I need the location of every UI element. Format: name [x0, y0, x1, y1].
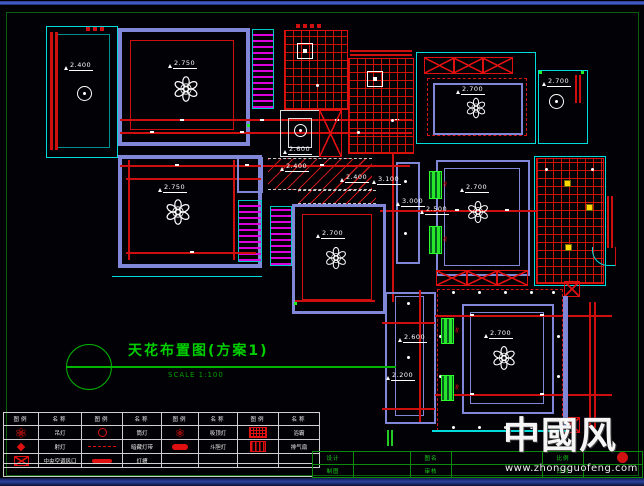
drawing-title: 天花布置图(方案1) [128, 340, 269, 360]
elevation-label: 2.700 [316, 230, 345, 239]
balcony-curtain-line [55, 32, 58, 150]
legend-symbol-cell [162, 426, 199, 440]
titleblock-cell: 审核 [411, 465, 452, 478]
elevation-label: 2.400 [280, 163, 309, 172]
legend-name: 筒灯 [123, 426, 162, 440]
closet-xbox [466, 270, 498, 286]
chandelier-icon [490, 344, 518, 372]
chandelier-icon [464, 96, 488, 120]
dim-text-mark [540, 314, 544, 316]
airflow-mark: ≈ [452, 384, 460, 391]
dimension-line [382, 322, 435, 324]
dim-text-mark [86, 27, 106, 31]
elevation-label: 2.700 [484, 330, 513, 339]
dim-text-mark [190, 251, 194, 253]
downlight-dot [404, 232, 407, 235]
dim-text-mark [505, 209, 509, 211]
exhaust-fan-symbol-icon [250, 441, 266, 452]
titleblock-cell: 设计 [313, 452, 354, 465]
dim-text-mark [470, 393, 474, 395]
airflow-mark: ≈ [440, 236, 448, 243]
green-node [294, 302, 297, 305]
legend-header: 图例 [238, 413, 279, 426]
window-bottom-edge [0, 478, 644, 486]
green-node [581, 71, 584, 74]
curtain-line [611, 196, 613, 248]
ceiling-line [233, 160, 235, 260]
titleblock-cell [354, 452, 411, 465]
dimension-line [419, 290, 421, 422]
titleblock-cell: 图名 [411, 452, 452, 465]
dimension-line [382, 408, 435, 410]
elevation-label: 2.750 [158, 184, 187, 193]
downlight-dot [452, 291, 455, 294]
chandelier-icon [323, 245, 349, 271]
legend-name: 斗胆灯 [199, 440, 238, 454]
downlight-dot [557, 375, 560, 378]
legend-name: 射灯 [39, 440, 82, 454]
flush-lamp-icon [297, 43, 313, 59]
downlight-dot [404, 180, 407, 183]
dim-text-mark [296, 24, 324, 28]
watermark-url: www.zhongguofeng.com [505, 463, 638, 474]
green-node [539, 71, 542, 74]
downlight-dot [545, 168, 548, 171]
duct-xbox [564, 281, 580, 297]
door-line [391, 430, 393, 446]
chandelier-icon [171, 74, 201, 104]
wall-lamp-mark [565, 244, 572, 251]
legend-symbol-cell [82, 440, 123, 454]
title-underline [66, 366, 396, 368]
legend-symbol-cell [82, 426, 123, 440]
ceiling-line [128, 160, 130, 260]
legend-header: 名称 [39, 413, 82, 426]
ceiling-lamp-icon [549, 94, 564, 109]
wardrobe-hatch [270, 206, 292, 266]
wardrobe-hatch [252, 29, 274, 109]
dim-text-mark [455, 209, 459, 211]
dim-text-mark [240, 131, 244, 133]
closet-xbox [424, 57, 455, 74]
elevation-label: 3.100 [372, 176, 401, 185]
elevation-label: 2.750 [168, 60, 197, 69]
dimension-line [295, 300, 375, 302]
legend-symbol-cell [4, 440, 39, 454]
legend-header: 名称 [199, 413, 238, 426]
legend-table: 图例 名称 图例 名称 图例 名称 图例 名称 吊灯 筒灯 吸顶灯 浴霸 射灯 … [3, 412, 320, 468]
dim-text-mark [540, 393, 544, 395]
legend-symbol-cell [238, 426, 279, 440]
balcony-curtain-line [50, 32, 53, 150]
beam-line [350, 54, 412, 56]
light-trough-symbol-icon [92, 459, 112, 463]
elevation-label: 2.400 [64, 62, 93, 71]
bath2-grid-ceiling [536, 158, 604, 284]
downlight-dot [552, 291, 555, 294]
dimension-line [435, 394, 612, 396]
downlight-dot [530, 291, 533, 294]
curtain-line [579, 75, 581, 103]
dim-text-mark [260, 119, 264, 121]
curtain-line [594, 302, 596, 428]
downlight-symbol-icon [98, 428, 107, 437]
dimension-line [120, 165, 410, 167]
legend-header-row: 图例 名称 图例 名称 图例 名称 图例 名称 [4, 413, 320, 426]
hidden-strip-light-symbol-icon [88, 446, 116, 447]
downlight-dot [557, 335, 560, 338]
legend-header: 图例 [162, 413, 199, 426]
downlight-dot [478, 426, 481, 429]
downlight-dot [407, 302, 410, 305]
downlight-dot [391, 119, 394, 122]
closet-wall [237, 157, 263, 193]
downlight-dot [591, 168, 594, 171]
closet-xbox [453, 57, 484, 74]
legend-name: 暗藏灯带 [123, 440, 162, 454]
hall-hatch-ceiling [298, 190, 376, 204]
wall-segment [563, 296, 568, 428]
legend-header: 名称 [279, 413, 320, 426]
titleblock-cell: 制图 [313, 465, 354, 478]
dim-text-mark [180, 119, 184, 121]
legend-header: 图例 [4, 413, 39, 426]
downlight-dot [407, 356, 410, 359]
downlight-dot [504, 291, 507, 294]
ceiling-lamp-symbol-icon [175, 428, 185, 438]
dim-text-mark [150, 131, 154, 133]
watermark-seal-icon [617, 452, 628, 463]
can-light-symbol-icon [172, 444, 188, 450]
beam-line [350, 50, 412, 52]
window-top-edge [0, 1, 644, 5]
legend-row: 射灯 暗藏灯带 斗胆灯 排气扇 [4, 440, 320, 454]
downlight-dot [478, 291, 481, 294]
elevation-label: 2.700 [460, 184, 489, 193]
dim-text-mark [245, 164, 249, 166]
door-line [387, 430, 389, 446]
legend-name: 浴霸 [279, 426, 320, 440]
elevation-label: 2.600 [283, 146, 312, 155]
dim-text-mark [470, 314, 474, 316]
elevation-label: 2.200 [386, 372, 415, 381]
drawing-scale-note: SCALE 1:100 [168, 371, 224, 379]
legend-row: 吊灯 筒灯 吸顶灯 浴霸 [4, 426, 320, 440]
closet-xbox [482, 57, 513, 74]
closet-xbox [436, 270, 468, 286]
green-node [247, 124, 250, 127]
downlight-dot [357, 131, 360, 134]
duct-xbox [319, 110, 342, 157]
ceiling-lamp-icon [294, 124, 307, 137]
kitchen-grid-ceiling [284, 30, 348, 110]
legend-header: 名称 [123, 413, 162, 426]
curtain-line [575, 75, 577, 103]
spotlight-symbol-icon [17, 442, 25, 450]
dimension-line [435, 315, 612, 317]
titleblock-cell [354, 465, 411, 478]
legend-name: 吸顶灯 [199, 426, 238, 440]
legend-symbol-cell [238, 440, 279, 454]
elevation-label: 2.500 [420, 206, 449, 215]
elevation-label: 2.600 [398, 334, 427, 343]
watermark-brand: 中國风 [503, 416, 617, 456]
legend-symbol-cell [162, 440, 199, 454]
wall-line [112, 276, 262, 277]
wall-lamp-mark [586, 204, 593, 211]
airflow-mark: ≈ [452, 327, 460, 334]
legend-symbol-cell [4, 426, 39, 440]
legend-header: 图例 [82, 413, 123, 426]
cad-ceiling-plan-canvas[interactable]: 2.400 2.750 2.600 2.400 2.400 2.700 2.70… [0, 0, 644, 486]
chandelier-symbol-icon [15, 427, 27, 439]
ceiling-lamp-icon [77, 86, 92, 101]
bath-heater-symbol-icon [249, 427, 267, 438]
legend-name: 吊灯 [39, 426, 82, 440]
curtain-line [607, 196, 609, 248]
flush-lamp-icon [367, 71, 383, 87]
wall-lamp-mark [564, 180, 571, 187]
dim-text-mark [175, 164, 179, 166]
airflow-mark: ≈ [440, 181, 448, 188]
elevation-label: 2.400 [340, 174, 369, 183]
chandelier-icon [163, 197, 193, 227]
dim-text-mark [320, 164, 324, 166]
legend-footer-row [3, 463, 313, 477]
curtain-line [589, 302, 591, 428]
elevation-label: 2.700 [456, 86, 485, 95]
downlight-dot [452, 426, 455, 429]
chandelier-icon [465, 199, 491, 225]
downlight-dot [316, 84, 319, 87]
closet-xbox [496, 270, 528, 286]
elevation-label: 2.700 [542, 78, 571, 87]
